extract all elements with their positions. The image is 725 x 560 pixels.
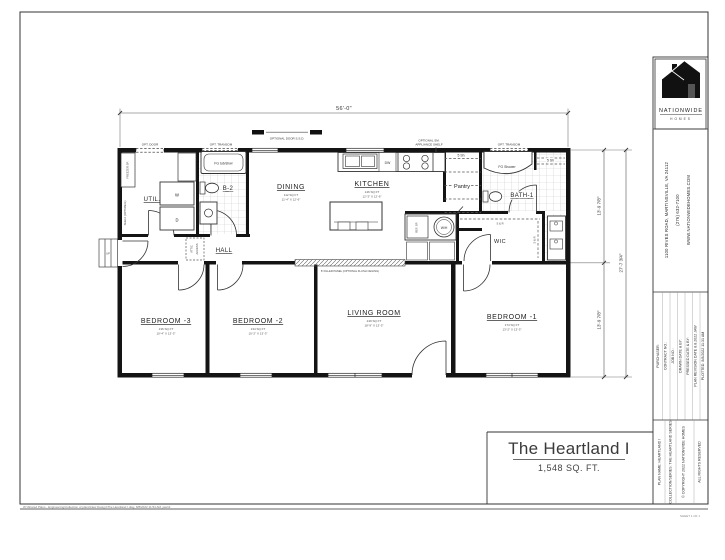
pantry-shelves-label: 5 Sh [458, 154, 465, 158]
room-label-dining: DINING [277, 184, 305, 191]
footer-sheet-number: SHEET 1 OF 1 [680, 514, 700, 518]
field-contract: CONTRACT NO.: [664, 342, 668, 370]
title-block-fields: PURCHASER: CONTRACT NO.: JOB NO.: DRAWN … [656, 292, 705, 420]
field-drawn: DRAWN DATE & BY: [679, 339, 683, 373]
address-line-2: (276) 632-7100 [675, 194, 680, 226]
room-label-b2: B-2 [223, 186, 234, 192]
attic-access-label-1: ATTIC [190, 245, 194, 253]
opt-door-label: OPT. DOOR [142, 143, 159, 147]
room-label-living: LIVING ROOM [347, 310, 400, 317]
optional-door-note: OPTIONAL DOOR S.S.D. [252, 130, 322, 141]
dishwasher-label: DW [385, 161, 391, 165]
field-purchaser: PURCHASER: [656, 344, 660, 368]
filler-note: 8' FILLER PANEL (OPTIONAL FLUSH CEILING) [321, 269, 379, 273]
title-strip: NATIONWIDE HOMES 1100 RIVES ROAD, MARTIN… [653, 59, 708, 504]
brand-name: NATIONWIDE [659, 108, 703, 114]
room-label-hall: HALL [216, 248, 233, 254]
rights-field: ALL RIGHTS RESERVED [698, 441, 702, 483]
wic-shelf-rod-label-2: S & R [533, 236, 537, 243]
room-label-bed3: BEDROOM -3 [141, 318, 191, 325]
copyright-field: © COPYRIGHT 2022 NATIONWIDE HOMES [682, 425, 686, 497]
brand-sub: HOMES [670, 117, 692, 121]
room-area-bed2: 134 SQ FT [251, 327, 266, 331]
plan-name-title: The Heartland I [508, 439, 630, 458]
room-label-bed2: BEDROOM -2 [233, 318, 283, 325]
appliance-note-2: APPLIANCE SHELF [415, 143, 443, 147]
washer-label: W [175, 193, 179, 198]
attic-access-label-2: ACCESS [195, 243, 199, 254]
filler-beam: 8' FILLER PANEL (OPTIONAL FLUSH CEILING) [295, 260, 405, 274]
field-plotted: PLOTTED: 8/8/2022 11:31 AM [701, 332, 705, 380]
room-area-bed3: 136 SQ FT [159, 327, 174, 331]
fridge-label: REF. SP. [415, 222, 419, 233]
drawing-sheet: NATIONWIDE HOMES 1100 RIVES ROAD, MARTIN… [0, 0, 725, 560]
room-label-pantry: Pantry [454, 184, 470, 190]
room-label-util: UTIL. [144, 197, 161, 203]
entry-steps: UP [99, 239, 118, 267]
footer-file-path: W:\Shared Plans - Engineering\Collection… [23, 505, 171, 509]
room-area-kitchen: 146 SQ FT [365, 190, 380, 194]
up-label: UP [106, 252, 110, 256]
wic-shelf-rod-label-1: S & R [496, 222, 503, 226]
tub-label: FG tub/shwr [214, 162, 233, 166]
room-size-bed2: 10'-2" X 13'-3" [249, 332, 268, 336]
optional-shelf-label: SHELF (OPTIONAL) [123, 201, 127, 226]
water-heater-label: W/H [441, 226, 448, 230]
plan-title-block: The Heartland I 1,548 SQ. FT. [508, 439, 630, 473]
room-size-dining: 11'-4" X 12'-6" [282, 198, 301, 202]
room-size-bed3: 10'-4" X 13'-3" [157, 332, 176, 336]
dryer-label: D [175, 218, 178, 223]
room-label-wic: WIC [494, 239, 506, 245]
room-label-kitchen: KITCHEN [355, 181, 390, 188]
shower-label: FG Shower [498, 165, 516, 169]
room-area-bed1: 174 SQ FT [505, 323, 520, 327]
house-logo-icon [662, 61, 700, 98]
opt-transom-label-1: OPT. TRANSOM [210, 143, 233, 147]
plan-sqft: 1,548 SQ. FT. [538, 463, 600, 473]
opt-door-ssd-label: OPTIONAL DOOR S.S.D. [270, 137, 305, 141]
room-area-living: 249 SQ FT [367, 319, 382, 323]
room-size-living: 18'-9" X 13'-3" [365, 324, 384, 328]
room-area-dining: 112 SQ FT [284, 193, 299, 197]
room-size-bed1: 13'-2" X 13'-3" [503, 328, 522, 332]
room-size-kitchen: 12'-3" X 12'-6" [363, 195, 382, 199]
dim-module-rear: 13'-9 7/8" [597, 310, 602, 329]
dim-overall-depth: 27'-7 3/4" [619, 253, 624, 272]
address-block: 1100 RIVES ROAD, MARTINSVILLE, VA 24112 … [664, 161, 691, 258]
address-line-3: WWW.NATIONWIDEHOMES.COM [686, 175, 691, 245]
freezer-space-label: FREEZER SP. [126, 161, 130, 179]
plan-info-block: PLAN NAME: HEARTLAND I COLLECTION/SERIES… [658, 420, 702, 504]
room-label-bed1: BEDROOM -1 [487, 314, 537, 321]
field-revision: PLAN REVISION DATE 8.8.2022 JAW [694, 325, 698, 387]
room-label-bath1: BATH-1 [510, 193, 534, 199]
dim-module-front: 13'-9 7/8" [597, 196, 602, 215]
plan-name-field: PLAN NAME: HEARTLAND I [658, 439, 662, 485]
field-job: JOB NO.: [671, 348, 675, 363]
dim-overall-width: 56'-0" [336, 106, 352, 112]
opt-transom-label-2: OPT. TRANSOM [498, 143, 521, 147]
floor-plan-svg: NATIONWIDE HOMES 1100 RIVES ROAD, MARTIN… [0, 0, 725, 560]
field-pressed: PRESSED DATE & BY: [686, 337, 690, 374]
address-line-1: 1100 RIVES ROAD, MARTINSVILLE, VA 24112 [664, 161, 669, 258]
series-field: COLLECTION/SERIES: THE HEARTLAND SERIES [669, 420, 673, 504]
bath-closet-shelves-label: 5 Sh [547, 159, 554, 163]
